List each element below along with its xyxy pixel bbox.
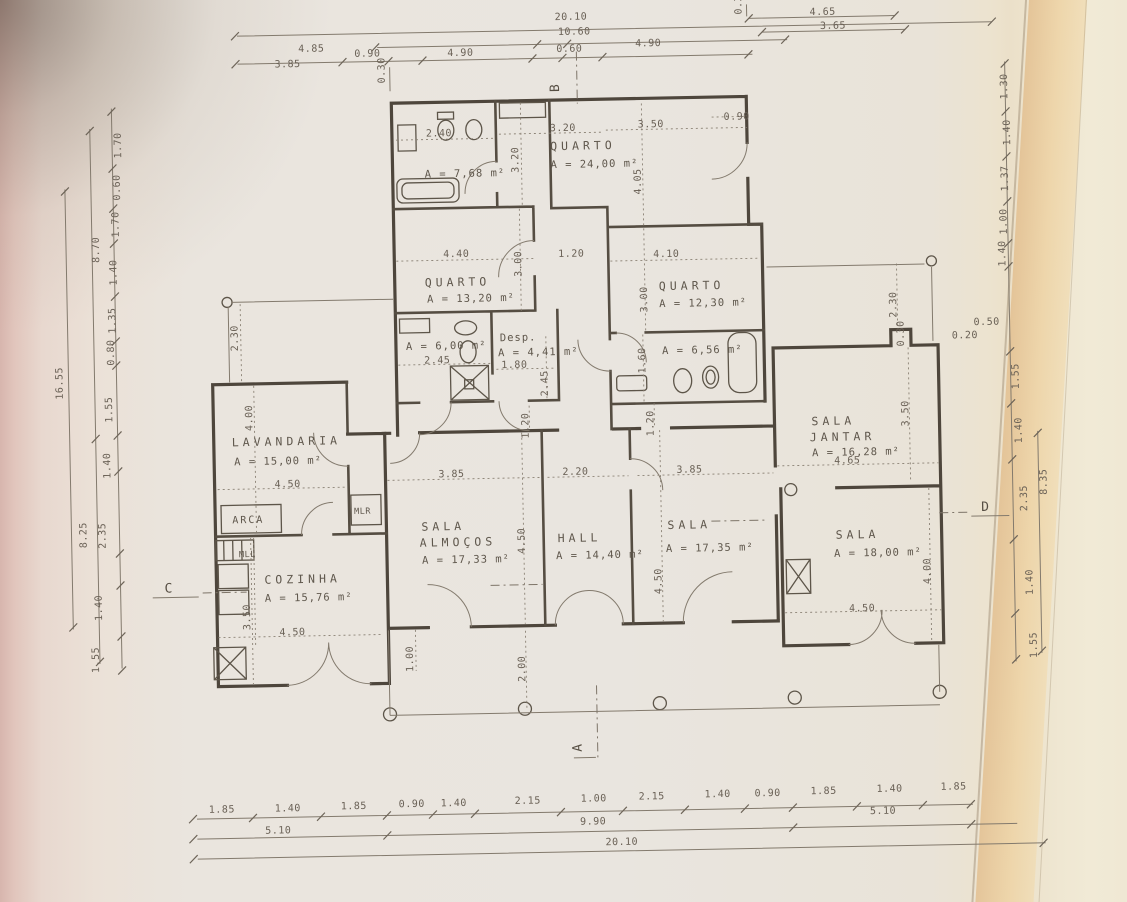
room-name: LAVANDARIA xyxy=(232,433,341,449)
column-icon xyxy=(785,484,797,496)
dim-label: 1.60 xyxy=(637,347,648,373)
dim-label: 2.35 xyxy=(97,523,108,549)
washbasin-icon xyxy=(399,319,429,334)
dim-label: 4.10 xyxy=(653,249,679,260)
dim-label: 0.30 xyxy=(896,320,907,346)
dim-label: 1.85 xyxy=(341,801,367,812)
dim-label: 1.20 xyxy=(558,249,584,260)
dim-label: 1.30 xyxy=(999,73,1010,99)
dim-label: 2.30 xyxy=(230,325,241,351)
dim-label: 2.15 xyxy=(515,795,541,806)
dim-label: 0.30 xyxy=(733,0,744,15)
dim-label: 0.90 xyxy=(755,788,781,799)
dim-label: 3.20 xyxy=(550,123,576,134)
door-swings xyxy=(277,139,916,685)
dim-label: 8.35 xyxy=(1038,469,1049,495)
dim-label: 8.25 xyxy=(78,522,89,548)
dim-label: 1.40 xyxy=(441,798,467,809)
room-area: A = 6,56 m² xyxy=(662,344,743,358)
room-name: SALA xyxy=(667,517,711,532)
dim-label: 0.20 xyxy=(952,330,978,341)
dim-label: 1.00 xyxy=(405,646,416,672)
closet-shelf xyxy=(499,102,545,118)
washbasin-icon xyxy=(454,321,476,335)
dim-label: 3.00 xyxy=(639,286,650,312)
toilet-icon xyxy=(673,369,691,393)
dim-label: 4.05 xyxy=(633,168,644,194)
dim-label: 3.50 xyxy=(638,119,664,130)
mlr-label: MLR xyxy=(354,507,371,517)
dim-label: 1.70 xyxy=(110,211,121,237)
dim-label: 1.80 xyxy=(501,360,527,371)
dim-label: 1.00 xyxy=(581,793,607,804)
dim-label: 2.15 xyxy=(639,791,665,802)
dim-label: 1.85 xyxy=(940,781,966,792)
dim-label: 3.00 xyxy=(513,251,524,277)
dim-label: 16.55 xyxy=(54,367,66,400)
dim-label: 4.00 xyxy=(244,405,255,431)
room-area: A = 17,33 m² xyxy=(422,553,510,567)
dim-label: 2.20 xyxy=(562,467,588,478)
bathtub-inner xyxy=(402,182,454,199)
floor-plan-drawing: A = 7,68 m² QUARTO A = 24,00 m² QUARTO A… xyxy=(0,0,1127,902)
dim-label: 1.37 xyxy=(1000,165,1011,191)
dim-label: 1.55 xyxy=(91,647,102,673)
dim-label: 2.35 xyxy=(1019,485,1030,511)
dim-label: 4.50 xyxy=(653,568,664,594)
dim-label: 0.90 xyxy=(724,111,750,122)
dim-label: 0.30 xyxy=(376,57,387,83)
dim-label: 4.65 xyxy=(834,455,860,466)
porch-column-icon xyxy=(788,691,801,704)
dim-label: 1.40 xyxy=(94,595,105,621)
dim-label: 0.90 xyxy=(399,799,425,810)
dim-label: 1.40 xyxy=(876,784,902,795)
dim-label: 3.50 xyxy=(900,400,911,426)
dim-label: 20.10 xyxy=(605,837,638,849)
bidet-icon xyxy=(702,366,718,388)
dim-label: 20.10 xyxy=(555,11,588,23)
dim-label: 4.00 xyxy=(922,558,933,584)
dim-label: 4.65 xyxy=(810,7,836,18)
room-name: SALA xyxy=(421,519,465,534)
dim-label: 1.20 xyxy=(520,413,531,439)
dim-label: 3.20 xyxy=(510,147,521,173)
dim-label: 1.40 xyxy=(997,240,1008,266)
section-marker-d: D xyxy=(981,500,989,515)
dim-label: 1.55 xyxy=(1010,363,1021,389)
room-name: COZINHA xyxy=(264,571,341,586)
dim-label: 5.10 xyxy=(265,825,291,836)
scanned-floor-plan-photo: A = 7,68 m² QUARTO A = 24,00 m² QUARTO A… xyxy=(0,0,1127,902)
room-area: A = 6,00 m² xyxy=(406,339,487,353)
dim-label: 0.50 xyxy=(974,317,1000,328)
dim-label: 10.60 xyxy=(558,26,591,38)
dim-label: 0.80 xyxy=(106,339,117,365)
room-area: A = 17,35 m² xyxy=(666,541,754,555)
room-labels: A = 7,68 m² QUARTO A = 24,00 m² QUARTO A… xyxy=(225,132,923,605)
section-marker-b: B xyxy=(548,84,563,92)
dim-label: 1.00 xyxy=(998,208,1009,234)
dim-label: 0.60 xyxy=(556,44,582,55)
dim-label: 8.70 xyxy=(91,237,102,263)
dim-label: 1.85 xyxy=(209,804,235,815)
dim-label: 2.45 xyxy=(539,370,550,396)
room-area: A = 7,68 m² xyxy=(425,167,506,181)
dim-label: 2.40 xyxy=(426,128,452,139)
bidet-inner xyxy=(706,370,715,384)
room-name: QUARTO xyxy=(425,274,491,289)
dim-label: 4.50 xyxy=(274,479,300,490)
dim-label: 9.90 xyxy=(580,816,606,827)
dim-label: 4.90 xyxy=(635,38,661,49)
porch-column-icon xyxy=(518,702,531,715)
room-name: HALL xyxy=(558,530,602,545)
room-area: A = 18,00 m² xyxy=(834,546,922,560)
room-name: QUARTO xyxy=(550,138,616,153)
dim-label: 3.85 xyxy=(438,469,464,480)
column-icon xyxy=(222,297,232,307)
dim-label: 1.40 xyxy=(1013,417,1024,443)
room-area: A = 13,20 m² xyxy=(427,292,515,306)
dim-label: 1.55 xyxy=(1029,632,1040,658)
cistern-icon xyxy=(437,112,453,119)
dim-label: 1.40 xyxy=(275,803,301,814)
room-name: Desp. xyxy=(500,331,537,344)
shower-cross xyxy=(450,365,489,400)
arca-label: ARCA xyxy=(232,515,264,527)
dim-label: 1.70 xyxy=(113,132,124,158)
dim-label: 1.20 xyxy=(645,410,656,436)
room-area: A = 12,30 m² xyxy=(659,296,747,310)
dim-label: 4.50 xyxy=(516,528,527,554)
column-icon xyxy=(926,256,936,266)
dim-label: 1.40 xyxy=(705,789,731,800)
dim-label: 1.40 xyxy=(1024,569,1035,595)
dim-label: 1.40 xyxy=(108,259,119,285)
mll-label: MLL xyxy=(239,550,256,560)
dim-label: 3.85 xyxy=(676,464,702,475)
dim-label: 3.85 xyxy=(274,59,300,70)
cabinet-icon xyxy=(617,375,647,391)
fireplace-cross xyxy=(786,559,811,593)
room-area: A = 15,76 m² xyxy=(265,591,353,605)
section-marker-c: C xyxy=(164,582,172,597)
dim-label: 2.00 xyxy=(517,656,528,682)
washbasin-icon xyxy=(398,125,416,151)
dim-label: 1.35 xyxy=(107,307,118,333)
dim-label: 3.65 xyxy=(820,20,846,31)
bidet-icon xyxy=(466,120,482,140)
dim-label: 4.50 xyxy=(849,603,875,614)
section-markers: B A C D xyxy=(155,76,994,760)
room-area: A = 24,00 m² xyxy=(550,158,638,172)
room-area: A = 15,00 m² xyxy=(234,455,322,469)
bathtub-icon xyxy=(728,332,757,393)
dim-label: 4.50 xyxy=(279,627,305,638)
dim-label: 1.55 xyxy=(104,396,115,422)
room-name: QUARTO xyxy=(659,278,725,293)
dim-label: 2.30 xyxy=(888,291,899,317)
dim-label: 3.50 xyxy=(242,604,253,630)
dim-label: 0.60 xyxy=(112,174,123,200)
dim-label: 4.40 xyxy=(443,249,469,260)
dim-label: 2.45 xyxy=(424,355,450,366)
room-area: A = 14,40 m² xyxy=(556,548,644,562)
dim-label: 1.40 xyxy=(1002,119,1013,145)
section-marker-a: A xyxy=(571,744,586,752)
bathtub-icon xyxy=(397,178,459,203)
room-name: SALA xyxy=(836,527,880,542)
room-name: JANTAR xyxy=(810,429,876,444)
dim-label: 4.90 xyxy=(447,48,473,59)
room-area: A = 4,41 m² xyxy=(498,346,579,360)
dim-label: 1.40 xyxy=(102,453,113,479)
porch-column-icon xyxy=(653,697,666,710)
dim-label: 1.85 xyxy=(810,786,836,797)
room-name: SALA xyxy=(811,413,855,428)
dim-label: 4.85 xyxy=(298,44,324,55)
dim-label: 5.10 xyxy=(870,806,896,817)
room-name: ALMOÇOS xyxy=(420,534,497,549)
kitchen-appliance xyxy=(218,564,248,589)
